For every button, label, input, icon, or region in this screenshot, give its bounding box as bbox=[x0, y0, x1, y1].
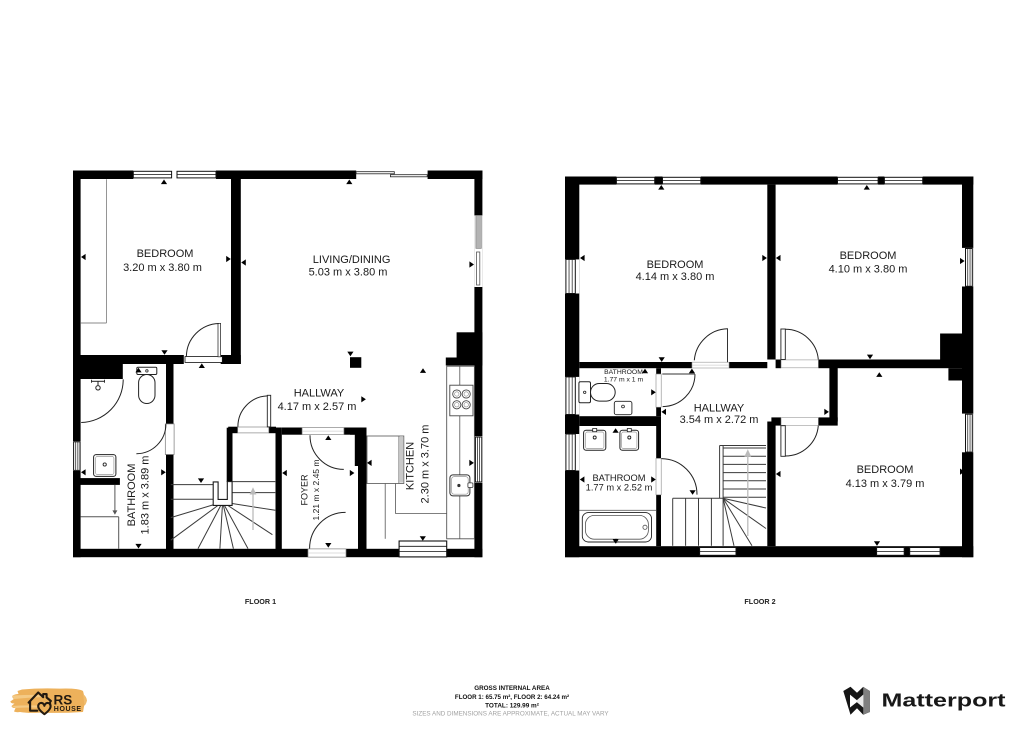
svg-text:HALLWAY: HALLWAY bbox=[694, 403, 745, 415]
svg-text:3.54 m x 2.72 m: 3.54 m x 2.72 m bbox=[680, 414, 759, 426]
svg-text:HALLWAY: HALLWAY bbox=[294, 387, 345, 399]
svg-text:GROSS INTERNAL AREA: GROSS INTERNAL AREA bbox=[474, 685, 550, 692]
svg-text:BEDROOM: BEDROOM bbox=[137, 248, 194, 260]
svg-text:HOUSE: HOUSE bbox=[54, 706, 82, 713]
svg-text:FOYER: FOYER bbox=[300, 474, 310, 506]
svg-text:BATHROOM: BATHROOM bbox=[126, 464, 138, 527]
svg-text:FLOOR 1: 65.75 m², FLOOR 2: 64: FLOOR 1: 65.75 m², FLOOR 2: 64.24 m² bbox=[455, 694, 569, 701]
svg-text:3.20 m x 3.80 m: 3.20 m x 3.80 m bbox=[123, 262, 202, 274]
svg-text:BEDROOM: BEDROOM bbox=[840, 250, 897, 262]
svg-text:4.14 m x 3.80 m: 4.14 m x 3.80 m bbox=[636, 271, 715, 283]
svg-text:1.21 m x 2.45 m: 1.21 m x 2.45 m bbox=[311, 460, 321, 521]
svg-text:1.77 m x 2.52 m: 1.77 m x 2.52 m bbox=[586, 482, 653, 492]
svg-text:5.03 m x 3.80 m: 5.03 m x 3.80 m bbox=[309, 267, 388, 279]
svg-text:BATHROOM: BATHROOM bbox=[604, 369, 643, 376]
svg-text:FLOOR 2: FLOOR 2 bbox=[744, 597, 775, 606]
svg-text:BEDROOM: BEDROOM bbox=[647, 259, 704, 271]
svg-text:SIZES AND DIMENSIONS ARE APPRO: SIZES AND DIMENSIONS ARE APPROXIMATE, AC… bbox=[412, 710, 609, 717]
svg-text:4.13 m x 3.79 m: 4.13 m x 3.79 m bbox=[846, 478, 925, 490]
svg-text:Matterport: Matterport bbox=[882, 691, 1006, 711]
svg-text:KITCHEN: KITCHEN bbox=[405, 442, 417, 490]
svg-text:BEDROOM: BEDROOM bbox=[857, 464, 914, 476]
svg-text:4.17 m x 2.57 m: 4.17 m x 2.57 m bbox=[278, 401, 357, 413]
svg-text:1.83 m x 3.89 m: 1.83 m x 3.89 m bbox=[140, 456, 152, 535]
svg-text:1.77 m x 1 m: 1.77 m x 1 m bbox=[604, 377, 644, 384]
svg-text:TOTAL: 129.99 m²: TOTAL: 129.99 m² bbox=[485, 703, 539, 710]
svg-text:2.30 m x 3.70 m: 2.30 m x 3.70 m bbox=[420, 425, 432, 504]
svg-text:FLOOR 1: FLOOR 1 bbox=[245, 597, 276, 606]
svg-text:4.10 m x 3.80 m: 4.10 m x 3.80 m bbox=[829, 264, 908, 276]
svg-text:LIVING/DINING: LIVING/DINING bbox=[313, 254, 391, 266]
